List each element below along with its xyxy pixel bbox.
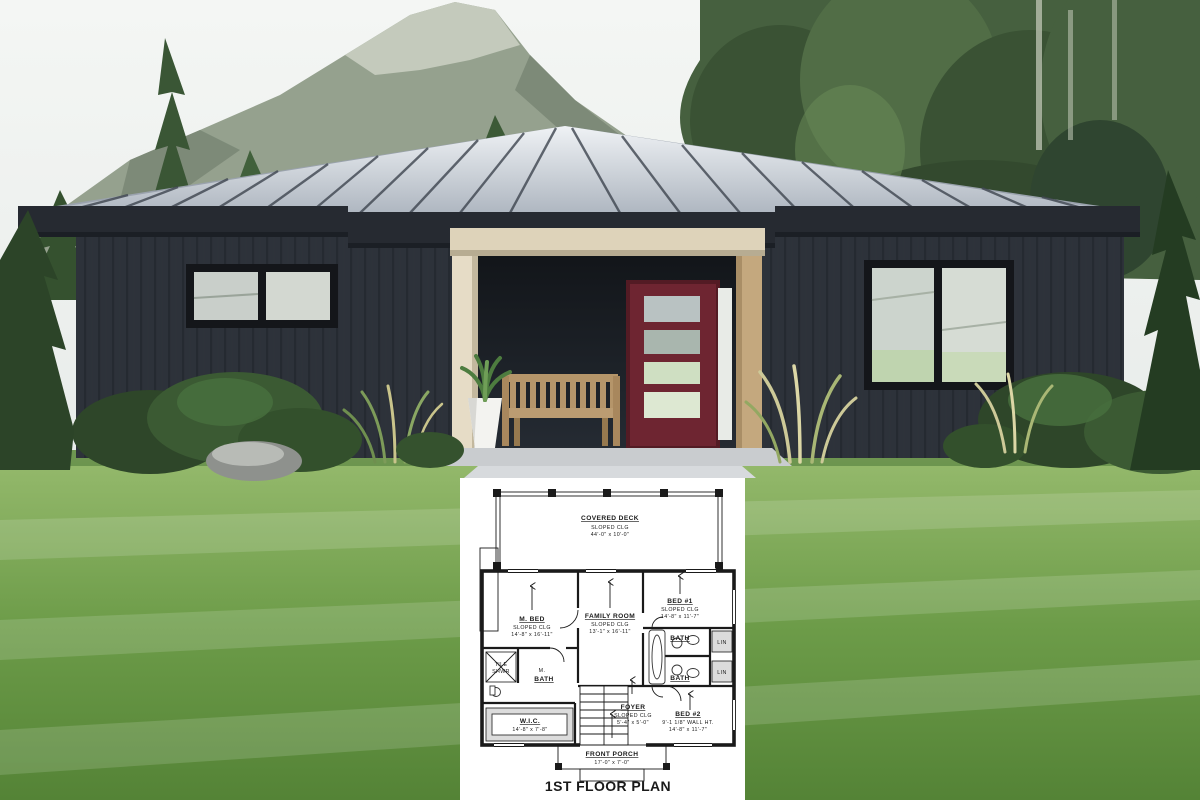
plan-label-bed-1-dims: 14'-8" x 11'-7" [661,614,699,620]
door-pane-4 [644,392,700,418]
plan-label-bed-1: BED #1 [667,598,693,605]
plan-caption: 1ST FLOOR PLAN [545,778,671,794]
plan-label-wic-dims: 14'-8" x 7'-8" [512,727,547,733]
plan-label-covered-deck-dims: 44'-0" x 10'-0" [591,532,630,538]
plan-front-porch: FRONT PORCH 17'-0" x 7'-0" [555,745,670,781]
plan-label-covered-deck: COVERED DECK [581,515,639,522]
entry-porch [424,228,792,478]
plan-label-lin-lower: LIN [717,670,726,676]
plan-label-bath-lower: BATH [670,675,689,682]
plan-label-shwr: SHWR [492,669,510,675]
porch-slab [424,448,792,466]
plan-label-family-room-clg: SLOPED CLG [591,622,629,628]
floor-plan-drawing: COVERED DECK SLOPED CLG 44'-0" x 10'-0" [460,478,745,800]
plan-label-wic: W.I.C. [520,718,540,725]
floor-plan-panel: COVERED DECK SLOPED CLG 44'-0" x 10'-0" [460,478,745,800]
front-door [626,280,732,448]
plan-label-m-bed-dims: 14'-8" x 16'-11" [511,632,553,638]
door-sidelight [718,288,732,440]
left-clerestory-window [186,264,338,328]
plan-label-covered-deck-clg: SLOPED CLG [591,525,629,531]
plan-label-bath-upper: BATH [670,635,689,642]
house-rendering-with-floor-plan: COVERED DECK SLOPED CLG 44'-0" x 10'-0" [0,0,1200,800]
plan-label-foyer-dims: 5'-4" x 5'-0" [617,720,649,726]
plan-label-bed-1-clg: SLOPED CLG [661,607,699,613]
plan-label-m: M. [539,668,546,674]
plan-label-lin-upper: LIN [717,640,726,646]
plan-label-bed-2-dims: 14'-8" x 11'-7" [669,727,707,733]
plan-label-family-room: FAMILY ROOM [585,613,635,620]
plan-label-family-room-dims: 13'-1" x 16'-11" [589,629,631,635]
plan-label-m-bath: BATH [534,676,553,683]
right-picture-window [864,260,1014,390]
plan-label-m-bed-clg: SLOPED CLG [513,625,551,631]
plan-label-foyer-clg: SLOPED CLG [614,713,652,719]
plan-label-tile: TILE [495,662,508,668]
plan-label-front-porch: FRONT PORCH [586,751,639,758]
plan-label-m-bed: M. BED [519,616,544,623]
plan-label-bed-2: BED #2 [675,711,701,718]
plan-label-front-porch-dims: 17'-0" x 7'-0" [594,760,629,766]
boulder [206,441,302,481]
door-pane-3 [644,362,700,384]
door-pane-2 [644,330,700,354]
porch-step [464,466,756,478]
plan-label-bed-2-wall: 9'-1 1/8" WALL HT. [662,720,714,726]
plan-covered-deck: COVERED DECK SLOPED CLG 44'-0" x 10'-0" [493,489,723,570]
plan-label-foyer: FOYER [621,704,646,711]
door-pane-1 [644,296,700,322]
